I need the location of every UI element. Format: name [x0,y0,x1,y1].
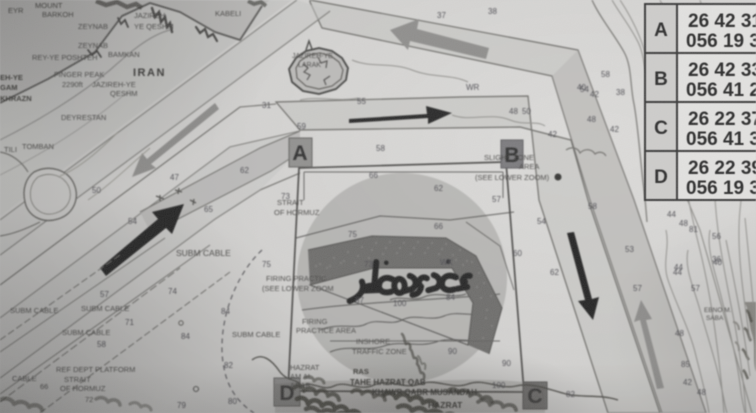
svg-text:26 22 39: 26 22 39 [688,158,756,179]
svg-text:056 41 32: 056 41 32 [686,129,756,150]
svg-text:B: B [654,69,668,90]
svg-text:056 19 38: 056 19 38 [686,178,756,199]
svg-text:056 41 26: 056 41 26 [686,80,756,101]
svg-text:056 19 34: 056 19 34 [686,31,756,52]
svg-text:A: A [654,20,668,41]
svg-text:26 42 33: 26 42 33 [688,60,756,81]
svg-text:D: D [654,167,668,188]
svg-text:26 22 37: 26 22 37 [688,109,756,130]
svg-text:C: C [654,118,668,139]
svg-text:26 42 31: 26 42 31 [688,11,756,32]
